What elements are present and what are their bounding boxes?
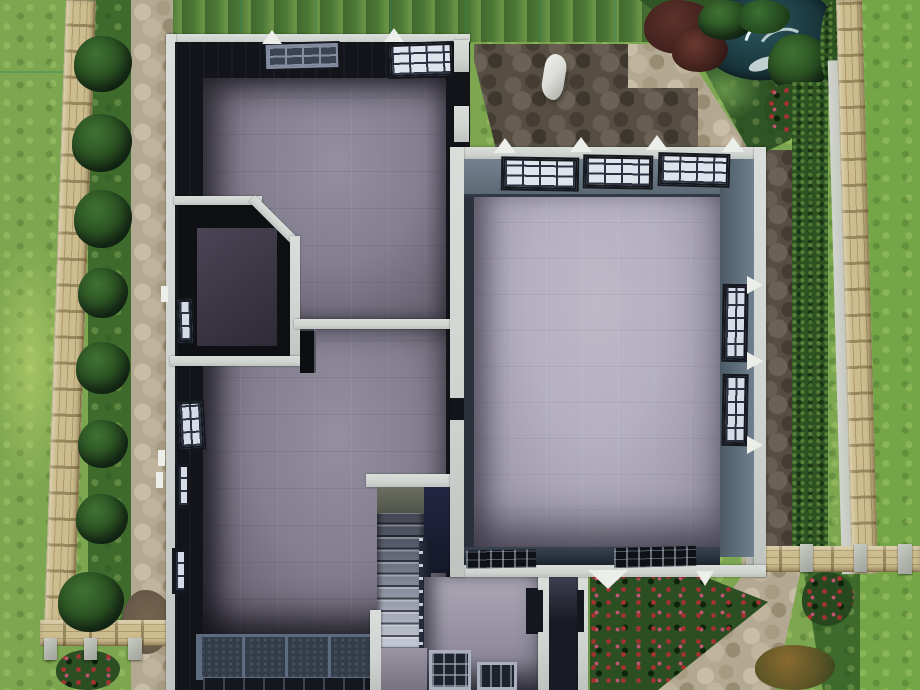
window-panes [174,550,186,592]
closet-wall-bottom[interactable] [170,356,300,366]
fence-post [44,638,57,660]
window-great-bottom-1[interactable] [466,549,536,568]
window-left-3[interactable] [175,463,191,509]
fence-post [800,544,813,572]
fence-post [84,638,97,660]
window-great-bottom-2[interactable] [614,546,696,568]
fence-post [854,544,867,572]
window-great-top-2[interactable] [583,154,654,189]
window-left-1[interactable] [175,298,195,345]
game-viewport [0,0,920,690]
stair-top-wall-cap[interactable] [366,474,462,487]
stair-landing-top [377,487,424,513]
hedgerow-right[interactable] [792,82,828,570]
greatroom-face-left [464,197,474,547]
window-stair-room-2[interactable] [477,662,517,690]
railing-balusters [419,538,423,650]
wall-stub-1[interactable] [454,40,469,72]
window-panes [177,300,192,342]
window-panes [177,465,189,507]
window-panes [503,158,578,189]
window-panes [389,43,452,77]
window-top-light[interactable] [387,41,454,79]
fence-post [898,544,912,574]
stair-room-floor-ext [381,648,427,690]
closet-floor [197,228,277,346]
window-great-right-1[interactable] [721,284,748,362]
window-panes [585,156,652,187]
wall-cap-stairroom-left[interactable] [370,610,381,690]
sill-tick [156,472,163,488]
fence-bottom-right[interactable] [756,546,920,572]
corridor-door-frame-left [536,590,543,632]
window-stair-room-1[interactable] [429,650,471,690]
divider-wall-cap[interactable] [450,147,464,577]
window-bank-bottom[interactable] [196,634,374,680]
wall-stub-2[interactable] [454,106,469,142]
window-panes [266,43,339,69]
sill-tick [161,286,168,302]
window-panes [723,376,746,444]
window-top-dark[interactable] [264,41,341,71]
fence-post [128,638,142,660]
window-panes [178,401,204,448]
window-great-top-1[interactable] [501,156,580,191]
divider-door-gap[interactable] [450,398,464,420]
side-corridor[interactable] [549,577,578,690]
window-panes [723,286,746,360]
window-left-2[interactable] [176,399,207,450]
window-great-right-2[interactable] [721,374,748,446]
sill-tick [158,450,165,466]
window-panes [660,154,729,186]
window-great-top-3[interactable] [658,152,731,188]
greatroom-floor[interactable] [474,197,720,547]
open-door-leaf[interactable] [300,329,316,373]
corridor-door-frame-right [577,590,584,632]
closet-wall-right[interactable] [290,236,300,364]
wall-mid-horizontal[interactable] [294,319,454,329]
window-left-4[interactable] [172,548,188,594]
